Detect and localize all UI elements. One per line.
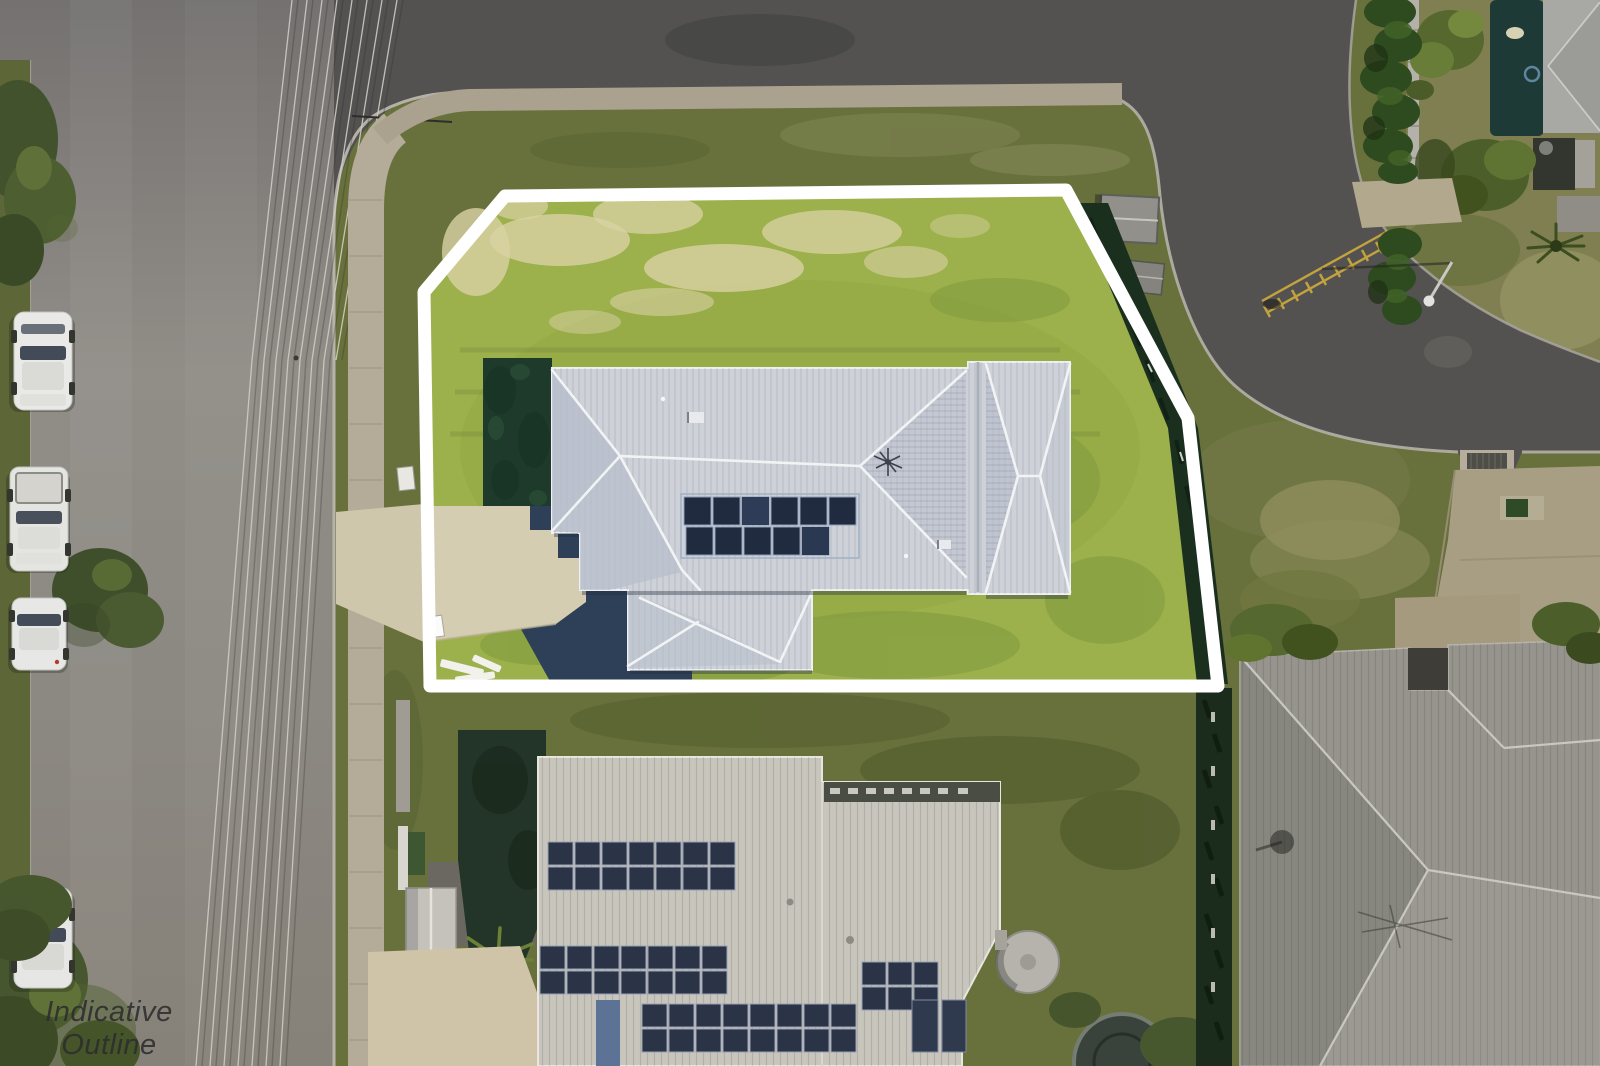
aerial-photo: Indicative Outline Only bbox=[0, 0, 1600, 1066]
neighbor-southeast bbox=[1196, 594, 1600, 1066]
skylight bbox=[912, 1000, 938, 1052]
parked-car-ute bbox=[6, 467, 71, 573]
kennel bbox=[1500, 496, 1544, 520]
aerial-scene bbox=[0, 0, 1600, 1066]
parked-car bbox=[9, 312, 75, 412]
south-wall bbox=[396, 700, 410, 812]
outdoor-kitchen bbox=[1533, 138, 1575, 190]
skylight bbox=[942, 1000, 966, 1052]
parked-car-small bbox=[8, 598, 69, 673]
water-tank bbox=[995, 930, 1059, 993]
ne-driveway-crossing bbox=[1352, 178, 1462, 228]
verge-sign bbox=[397, 466, 415, 491]
